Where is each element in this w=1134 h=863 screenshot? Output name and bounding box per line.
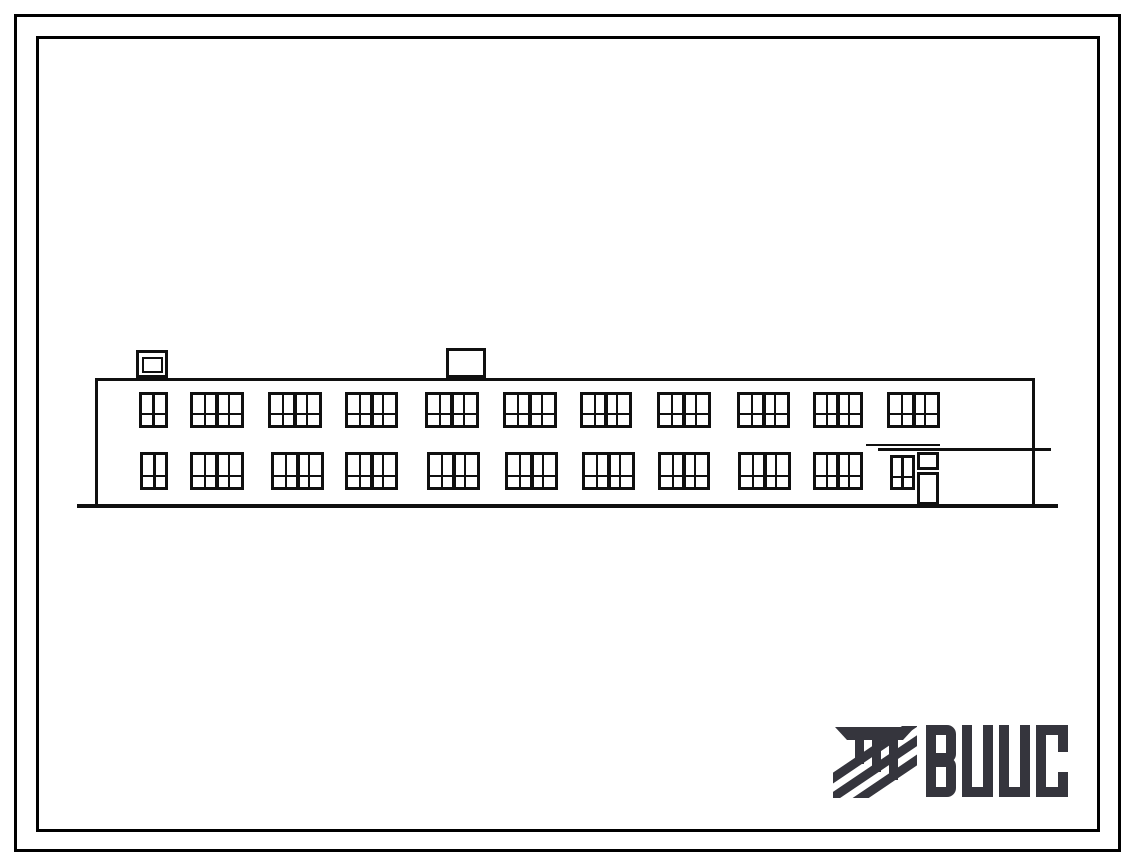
window (268, 392, 322, 428)
door-transom-window (917, 452, 939, 470)
window (425, 392, 479, 428)
drawing-sheet: ВЦИС (0, 0, 1134, 863)
window (345, 452, 398, 490)
logo-letter-С (1036, 725, 1068, 797)
window (813, 452, 863, 490)
window (345, 392, 398, 428)
roof-vent (446, 348, 486, 378)
window (140, 452, 168, 490)
window (813, 392, 863, 428)
window (738, 452, 791, 490)
window (139, 392, 168, 428)
window (427, 452, 480, 490)
window (190, 392, 244, 428)
entrance-door (917, 472, 939, 505)
window (737, 392, 790, 428)
window (580, 392, 632, 428)
logo-letter-И (999, 725, 1030, 797)
window (887, 392, 940, 428)
window (271, 452, 324, 490)
entrance-side-window (890, 455, 915, 490)
window (582, 452, 635, 490)
entrance-canopy-line (866, 444, 940, 446)
logo-letter-В (926, 725, 956, 797)
window (190, 452, 244, 490)
logo-letter-Ц (962, 725, 993, 797)
roof-vent-opening (142, 357, 163, 373)
window (657, 392, 711, 428)
window (658, 452, 710, 490)
entrance-canopy-line (878, 448, 1051, 451)
window (503, 392, 557, 428)
window (505, 452, 558, 490)
vcis-emblem-icon (833, 726, 917, 798)
logo-wordmark: ВЦИС (926, 725, 1068, 797)
